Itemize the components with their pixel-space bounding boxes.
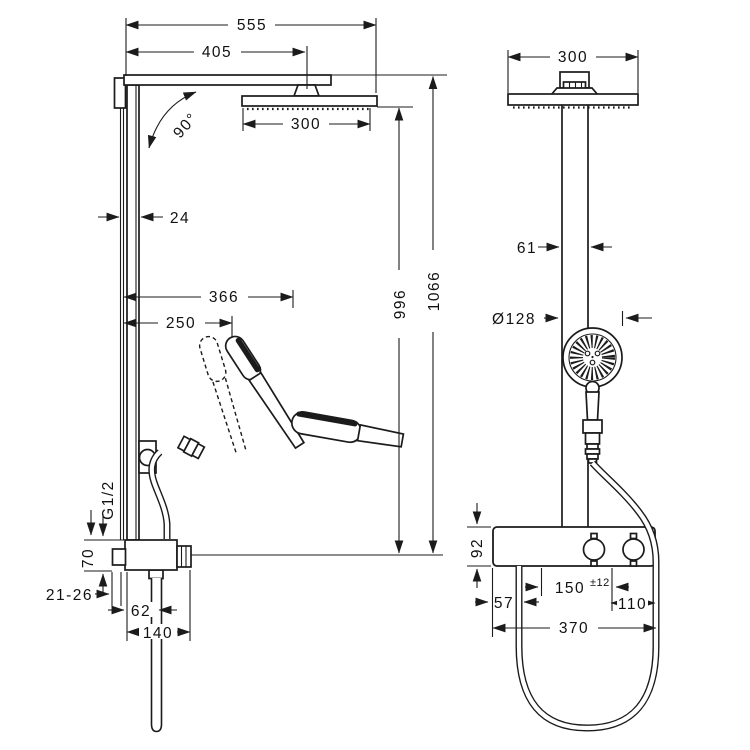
dim-300-front-label: 300 (558, 49, 588, 66)
dim-70: 70 (80, 514, 112, 594)
hand-shower-in-holder (222, 333, 308, 451)
dim-57: 57 (475, 568, 539, 637)
dim-61-label: 61 (517, 240, 537, 257)
dim-150: 150 ±12 (525, 568, 629, 611)
shower-pipe-front (562, 105, 588, 527)
dim-140-label: 140 (143, 625, 173, 642)
dim-g12-label: G1/2 (100, 480, 117, 520)
hand-shower-horizontal (290, 410, 404, 451)
dim-110: 110 (611, 595, 655, 613)
dim-61: 61 (517, 240, 612, 257)
dim-300-side-label: 300 (291, 116, 321, 133)
dim-92: 92 (467, 503, 491, 588)
overhead-shower-front (508, 72, 638, 108)
hand-shower-front (563, 328, 622, 463)
dim-366: 366 (124, 289, 293, 308)
holder-clamp-front (583, 420, 602, 433)
dim-1066-label: 1066 (426, 271, 443, 311)
shower-hose-side-lower (149, 570, 163, 732)
dim-250-label: 250 (166, 315, 196, 332)
dim-150-label: 150 (555, 580, 585, 597)
dim-1066: 1066 (331, 75, 447, 553)
thermostat-valve-side (113, 540, 444, 570)
dim-90deg: 90° (149, 92, 204, 148)
handshower-handle (586, 392, 599, 420)
dim-62-label: 62 (131, 603, 151, 620)
dim-g12: G1/2 (84, 480, 124, 540)
dim-250: 250 (124, 315, 232, 338)
side-view: 555 405 300 90° 2 (46, 17, 447, 732)
dim-405-label: 405 (202, 44, 232, 61)
dim-555-label: 555 (237, 17, 267, 34)
wall-supply-connector (113, 549, 126, 565)
dim-370-label: 370 (559, 620, 589, 637)
dim-996: 996 (377, 107, 413, 553)
dim-366-label: 366 (209, 289, 239, 306)
overhead-shower-side (242, 96, 377, 109)
front-view: 300 61 (467, 49, 656, 728)
dim-24: 24 (98, 210, 190, 227)
technical-drawing: 555 405 300 90° 2 (0, 0, 750, 750)
dim-92-label: 92 (469, 538, 486, 558)
valve-knob-left (584, 539, 605, 560)
dim-996-label: 996 (392, 289, 409, 319)
dim-128-label: Ø128 (492, 311, 536, 328)
wall-bar (115, 78, 140, 540)
dim-110-label: 110 (618, 596, 647, 613)
valve-side-connector (177, 546, 191, 567)
dim-300-side: 300 (243, 108, 370, 133)
dim-150-tolerance-label: ±12 (590, 577, 610, 589)
dim-57-label: 57 (494, 595, 514, 612)
shower-hose-side-upper (152, 452, 167, 539)
dim-24-label: 24 (170, 210, 190, 227)
valve-knob-right (623, 539, 644, 560)
dim-21-26-label: 21-26 (46, 587, 93, 604)
hose-connector-side (177, 435, 204, 459)
shower-arm (124, 75, 331, 96)
dim-70-label: 70 (80, 548, 97, 568)
thermostat-valve-front (493, 527, 655, 566)
dim-21-26: 21-26 (46, 572, 121, 606)
dim-128: Ø128 (492, 311, 652, 328)
hose-outlet-side (149, 570, 163, 579)
